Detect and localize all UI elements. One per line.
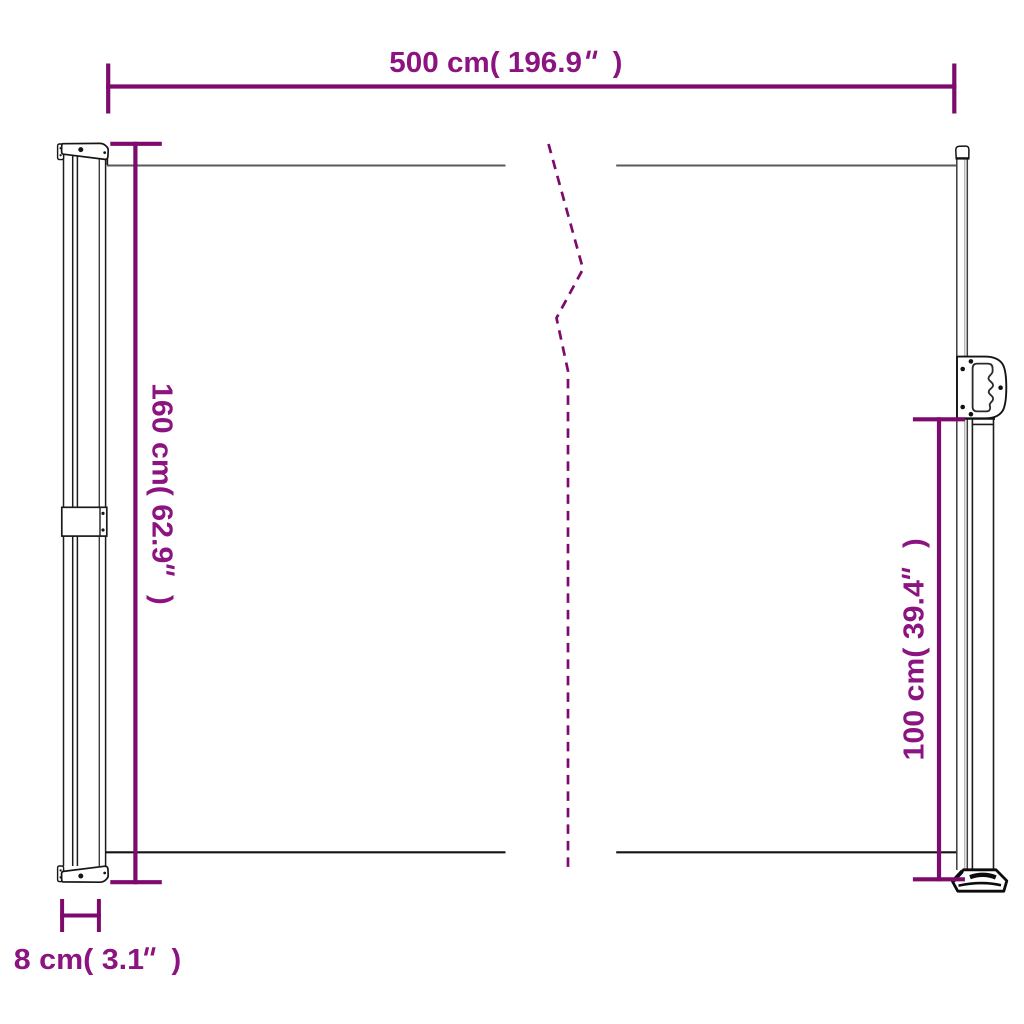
svg-text:): ) (146, 595, 178, 605)
svg-text:100 cm( 39.4: 100 cm( 39.4 (898, 580, 930, 760)
svg-text:500 cm( 196.9: 500 cm( 196.9 (389, 47, 582, 79)
svg-text:): ) (172, 944, 182, 976)
svg-text:): ) (898, 538, 930, 548)
svg-text:160 cm( 62.9: 160 cm( 62.9 (146, 383, 178, 563)
svg-text:8 cm( 3.1: 8 cm( 3.1 (14, 944, 144, 976)
svg-text:): ) (613, 47, 623, 79)
